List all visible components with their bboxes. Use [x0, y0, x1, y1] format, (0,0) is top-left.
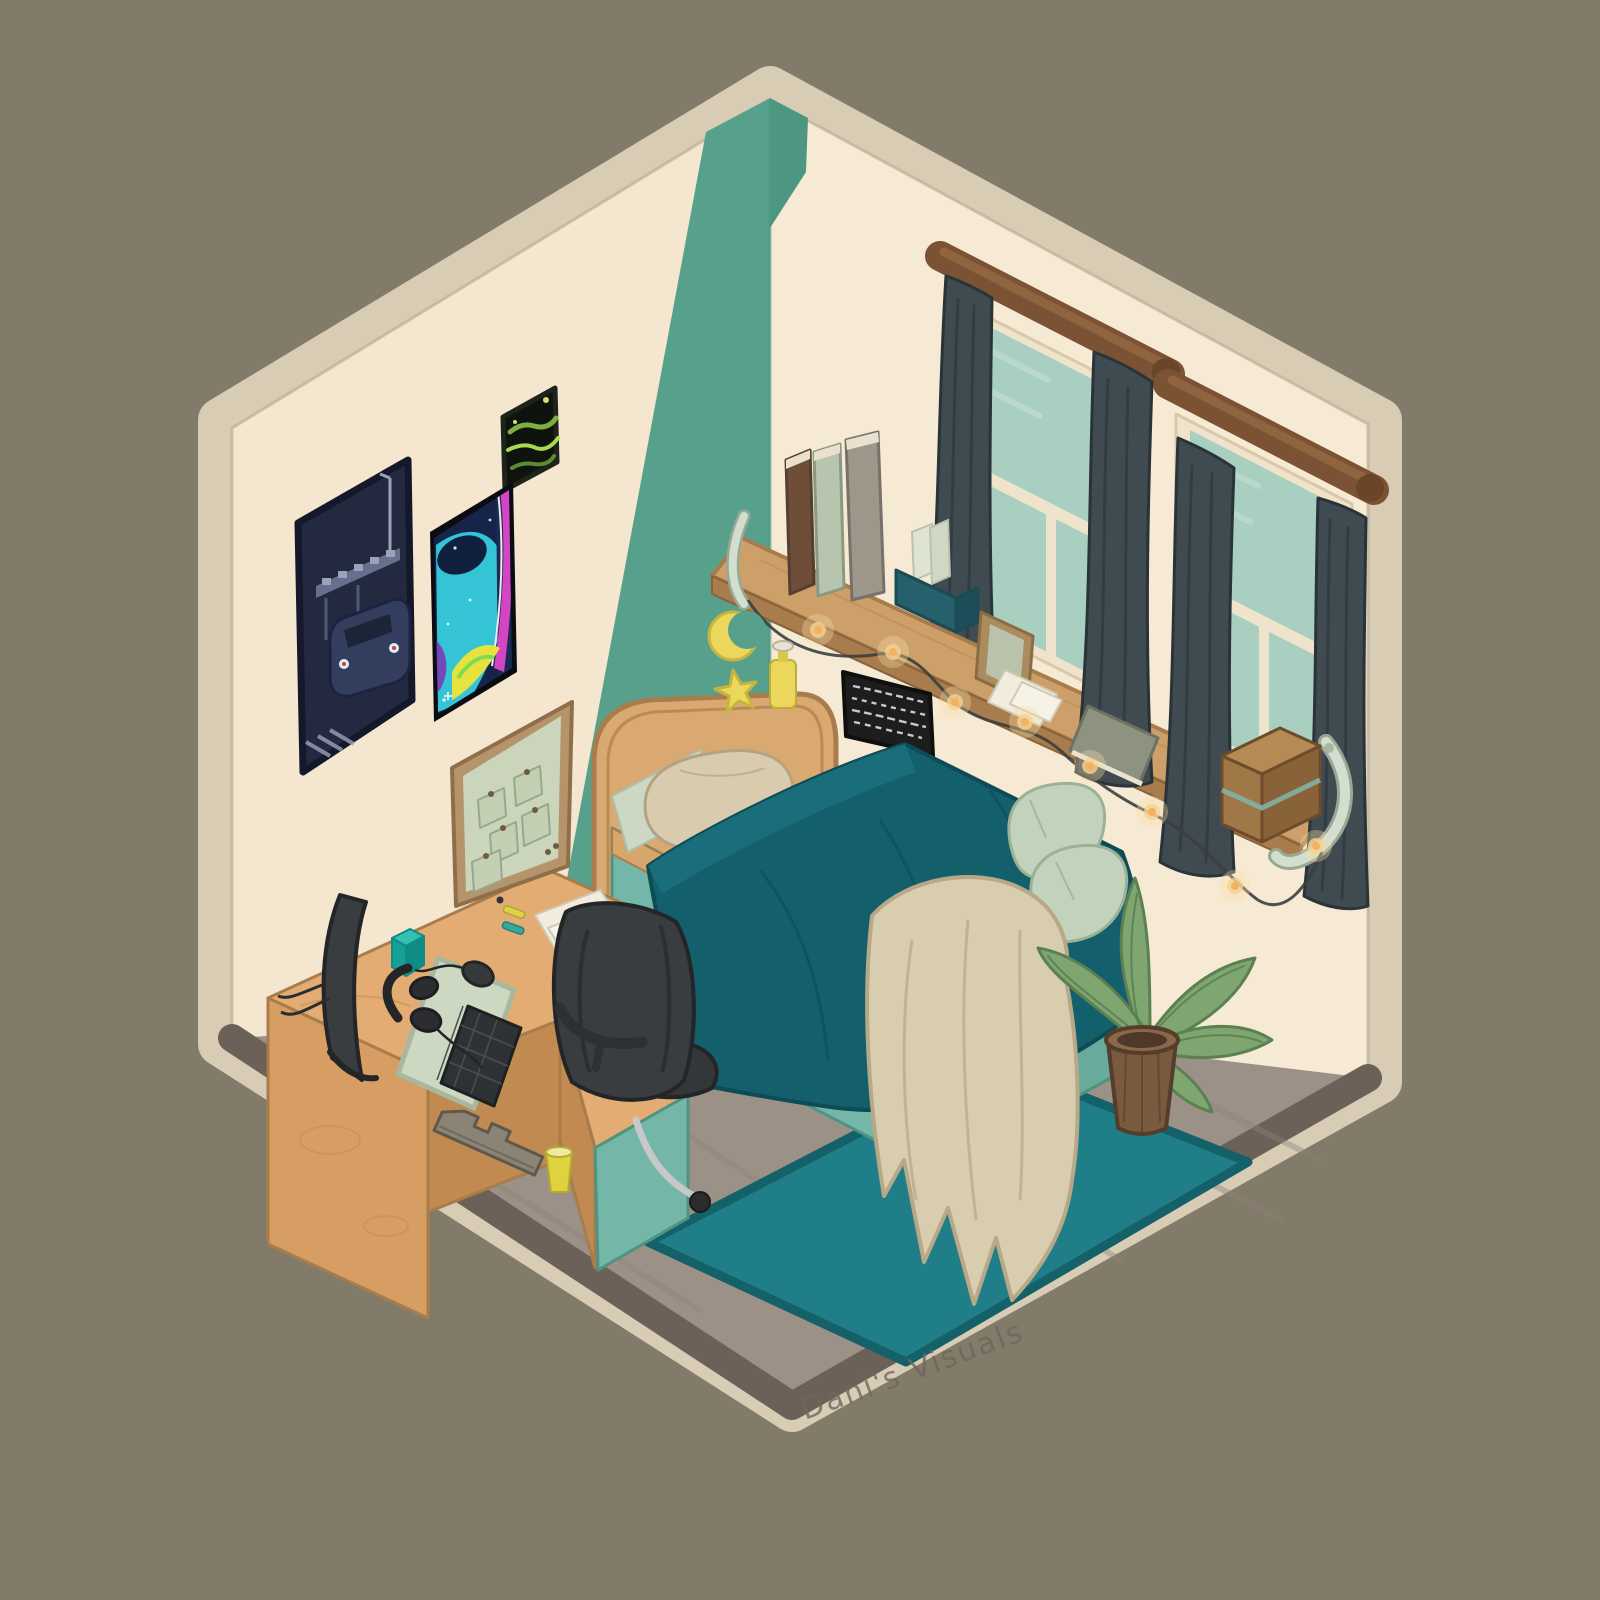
chair-wheel	[690, 1192, 710, 1212]
shelf-books	[786, 432, 884, 600]
chair-backrest	[554, 903, 694, 1100]
yellow-cup	[546, 1147, 572, 1192]
illustration-canvas: Dani's Visuals	[0, 0, 1600, 1600]
plant-pot	[1106, 1027, 1178, 1134]
isometric-bedroom-illustration: Dani's Visuals	[0, 0, 1600, 1600]
